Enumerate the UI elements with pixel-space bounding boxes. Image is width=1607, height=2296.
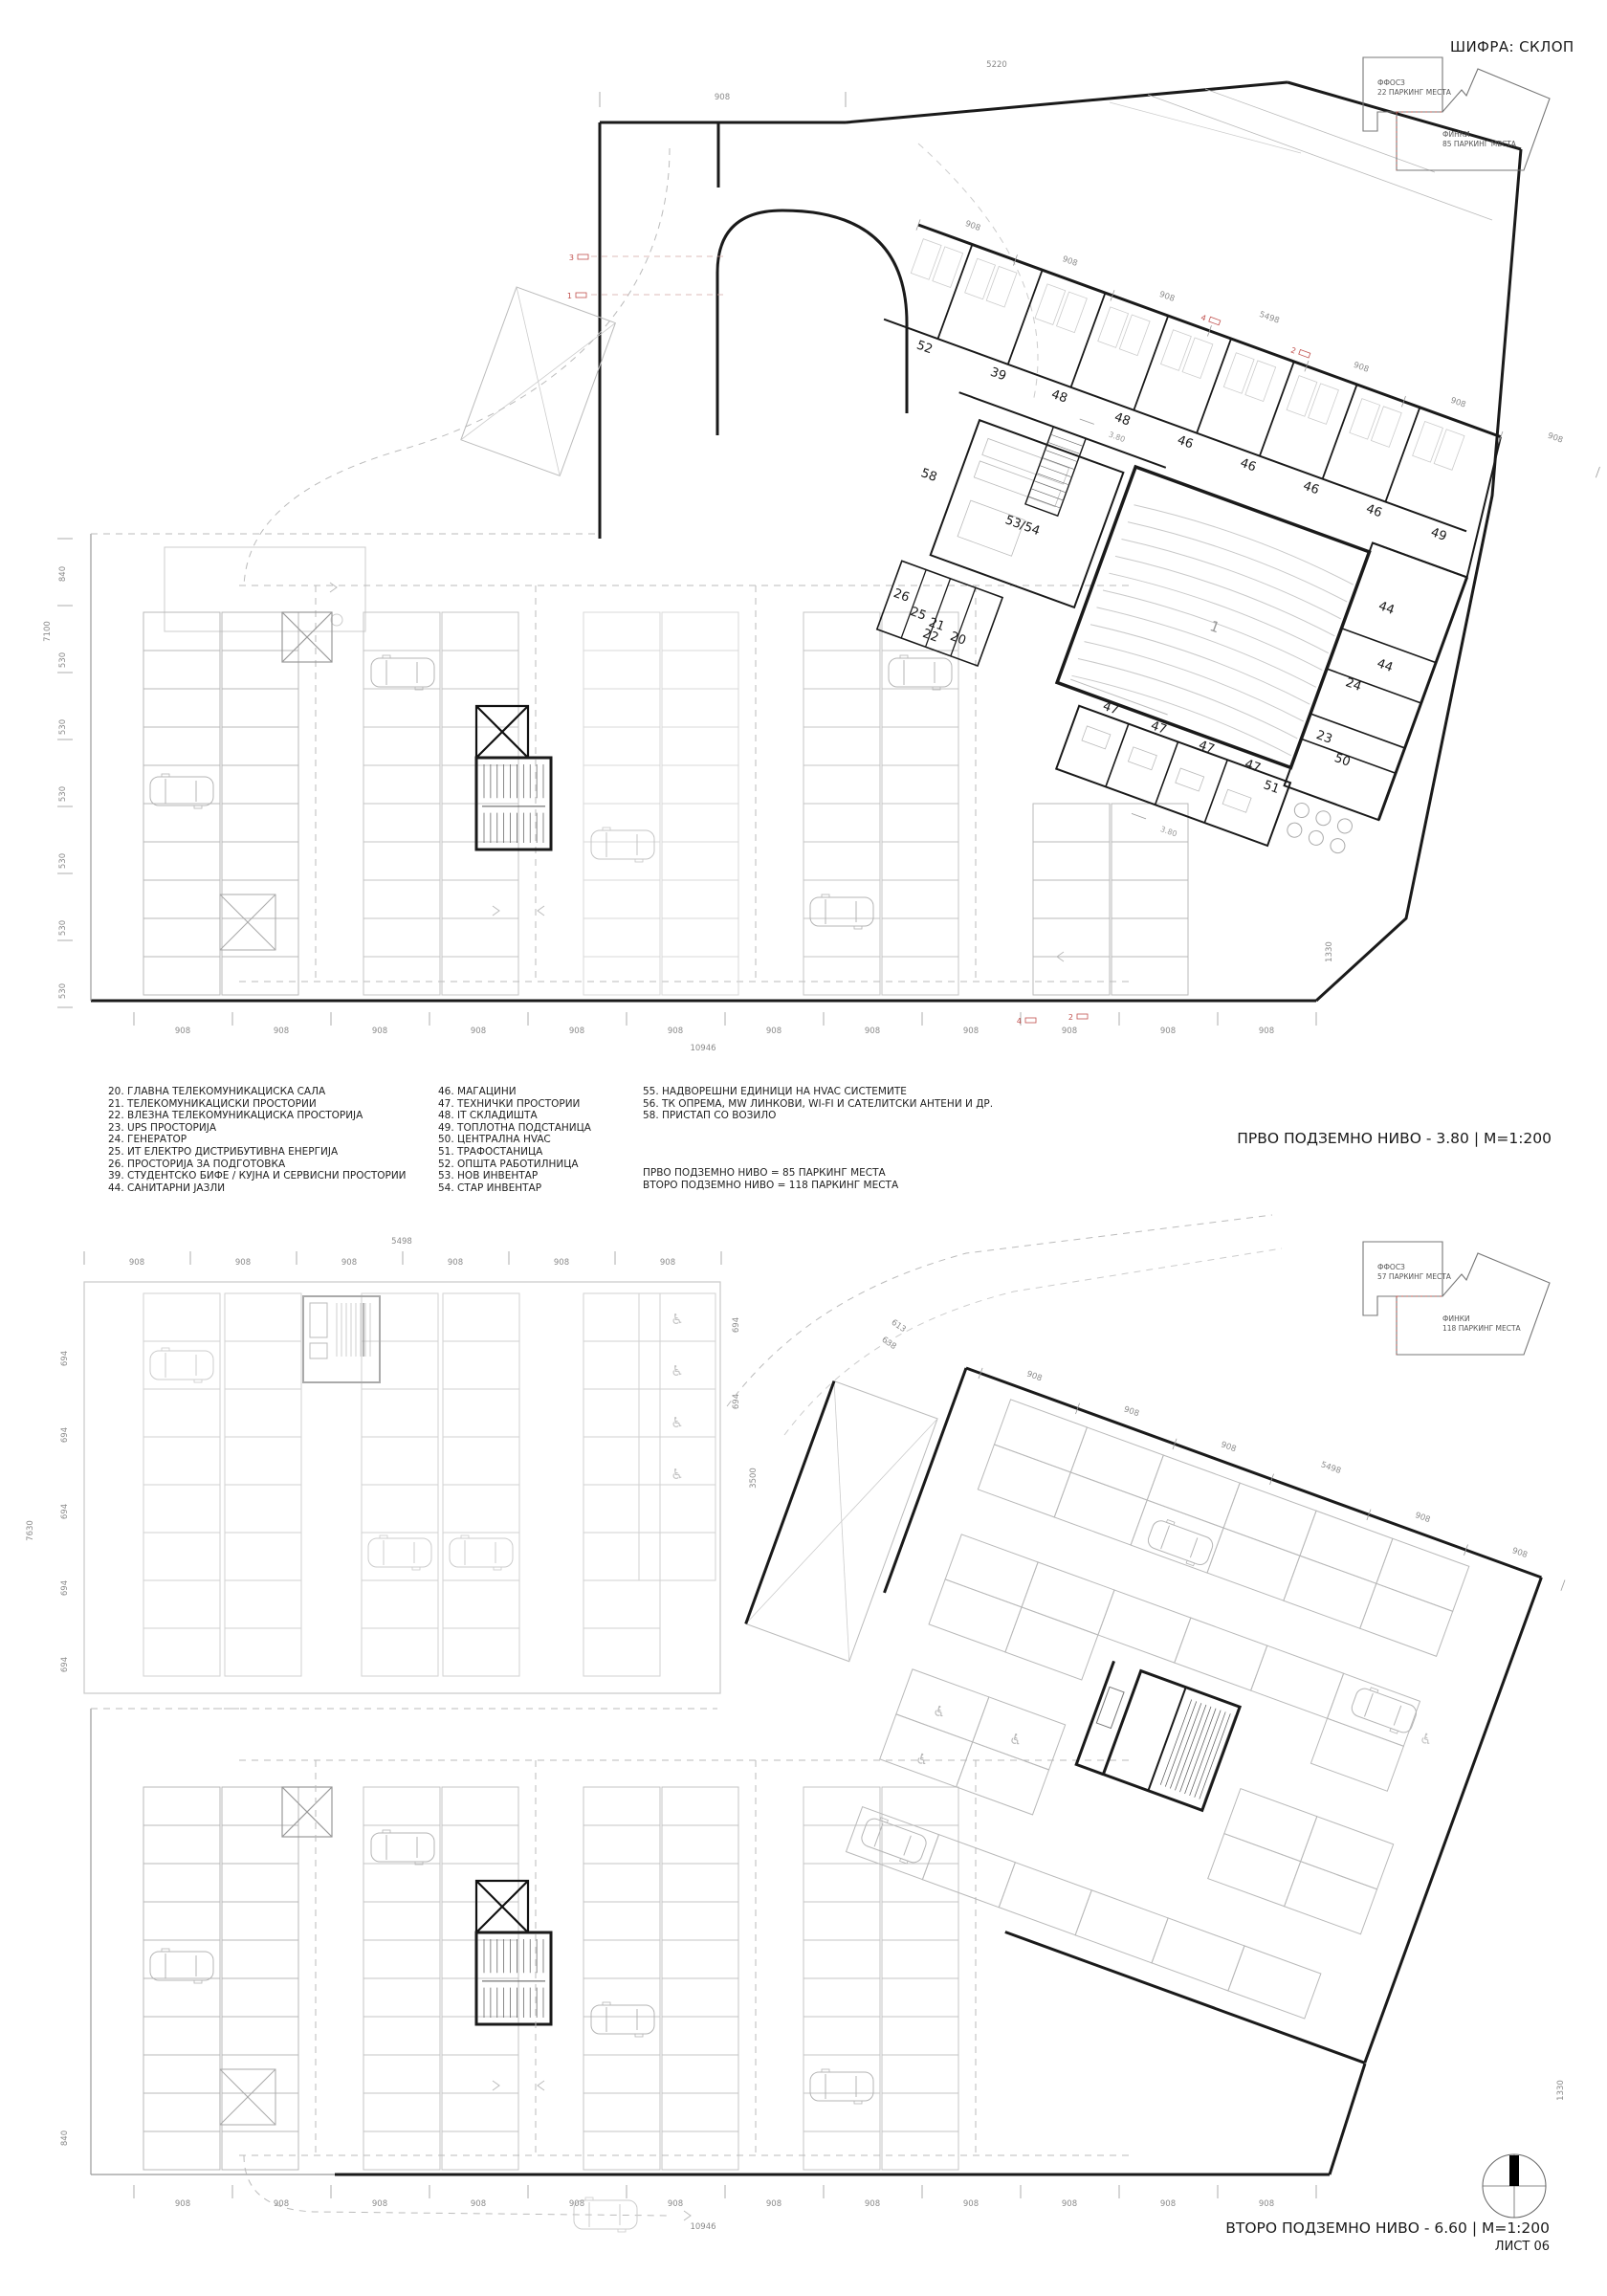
note-line: ВТОРО ПОДЗЕМНО НИВО = 118 ПАРКИНГ МЕСТА bbox=[643, 1180, 898, 1192]
legend-item: 21. ТЕЛЕКОМУНИКАЦИСКИ ПРОСТОРИИ bbox=[108, 1098, 407, 1111]
legend-item: 39. СТУДЕНТСКО БИФЕ / КУЈНА И СЕРВИСНИ П… bbox=[108, 1170, 407, 1182]
dim-label: 5498 bbox=[1319, 1460, 1342, 1476]
dim-label: 908 bbox=[448, 1258, 463, 1268]
keyplan-zone-b: ФИНКИ 118 ПАРКИНГ МЕСТА bbox=[1442, 1314, 1521, 1333]
dim-label: 908 bbox=[471, 1027, 486, 1036]
dim-label: 530 bbox=[58, 786, 68, 802]
car-symbol bbox=[858, 1814, 929, 1867]
dim-label: 908 bbox=[660, 1258, 675, 1268]
dim-label: 908 bbox=[865, 1027, 880, 1036]
dim-label: 908 bbox=[1259, 2199, 1274, 2209]
dim-label: 908 bbox=[569, 1027, 584, 1036]
room-number: 20 bbox=[948, 629, 968, 649]
car-symbol bbox=[368, 1535, 431, 1570]
legend-item: 54. СТАР ИНВЕНТАР bbox=[438, 1182, 591, 1195]
room-number: 44 bbox=[1375, 656, 1395, 675]
dim-label: 908 bbox=[1259, 1027, 1274, 1036]
room-number: 52 bbox=[914, 339, 935, 358]
red-annotation: 1 bbox=[567, 292, 572, 300]
legend-item: 44. САНИТАРНИ ЈАЗЛИ bbox=[108, 1182, 407, 1195]
legend-item: 47. ТЕХНИЧКИ ПРОСТОРИИ bbox=[438, 1098, 591, 1111]
dim-label: 908 bbox=[1414, 1511, 1432, 1525]
dim-label: 908 bbox=[1449, 396, 1467, 410]
legend-column-3: 55. НАДВОРЕШНИ ЕДИНИЦИ НА HVAC СИСТЕМИТЕ… bbox=[643, 1086, 993, 1122]
legend-item: 51. ТРАФОСТАНИЦА bbox=[438, 1146, 591, 1159]
car-symbol bbox=[150, 1348, 213, 1382]
room-number: 1 bbox=[1207, 617, 1222, 636]
disabled-parking-icon: ♿ bbox=[671, 1362, 683, 1380]
dim-label: 908 bbox=[963, 1027, 979, 1036]
legend-column-2: 46. МАГАЦИНИ 47. ТЕХНИЧКИ ПРОСТОРИИ 48. … bbox=[438, 1086, 591, 1194]
dim-label: 530 bbox=[58, 983, 68, 999]
dim-label: 694 bbox=[60, 1657, 70, 1672]
disabled-parking-icon: ♿ bbox=[914, 1749, 932, 1770]
level-mark: 3.80 bbox=[1159, 825, 1178, 839]
dim-label: 908 bbox=[1158, 290, 1177, 304]
parking-stalls bbox=[143, 612, 1188, 995]
dim-label: 908 bbox=[668, 2199, 683, 2209]
dim-label: 908 bbox=[1061, 254, 1079, 269]
legend-item: 23. UPS ПРОСТОРИЈА bbox=[108, 1122, 407, 1135]
red-annotation: 4 bbox=[1017, 1017, 1022, 1026]
keyplan-shape bbox=[1358, 52, 1554, 176]
dim-label: 908 bbox=[1160, 2199, 1176, 2209]
plan2-title: ВТОРО ПОДЗЕМНО НИВО - 6.60 | М=1:200 bbox=[1043, 2219, 1550, 2237]
upper-parking-grid: ♿♿♿♿ bbox=[84, 1282, 720, 1693]
floor-plan-level-1: 9089089085498908908908423.803.8052394848… bbox=[0, 0, 1607, 1196]
room-number: 47 bbox=[1243, 757, 1263, 776]
dim-label: 7100 bbox=[43, 621, 53, 642]
room-number: 46 bbox=[1176, 433, 1196, 453]
car-symbol bbox=[1349, 1684, 1420, 1737]
room-number: 39 bbox=[988, 365, 1008, 385]
disabled-parking-icon: ♿ bbox=[671, 1414, 683, 1431]
dim-label: 908 bbox=[766, 2199, 781, 2209]
legend-item: 22. ВЛЕЗНА ТЕЛЕКОМУНИКАЦИСКА ПРОСТОРИЈА bbox=[108, 1110, 407, 1122]
dim-label: 908 bbox=[1510, 1546, 1529, 1560]
dim-label: 530 bbox=[58, 719, 68, 735]
room-number: 53/54 bbox=[1003, 513, 1042, 539]
dim-label: 10946 bbox=[690, 2222, 715, 2232]
keyplan-level-1: ФФОСЗ 22 ПАРКИНГ МЕСТА ФИНКИ 85 ПАРКИНГ … bbox=[1358, 52, 1554, 176]
dim-label: 694 bbox=[60, 1580, 70, 1596]
dim-label: 908 bbox=[865, 2199, 880, 2209]
dim-label: 908 bbox=[274, 1027, 289, 1036]
dim-label: 1330 bbox=[1325, 941, 1334, 962]
dim-label: 530 bbox=[58, 920, 68, 936]
plan1-title: ПРВО ПОДЗЕМНО НИВО - 3.80 | М=1:200 bbox=[1045, 1130, 1552, 1147]
dim-label: 908 bbox=[569, 2199, 584, 2209]
dim-label: 694 bbox=[60, 1427, 70, 1443]
legend-item: 56. ТК ОПРЕМА, MW ЛИНКОВИ, WI-FI И САТЕЛ… bbox=[643, 1098, 993, 1111]
room-number: 25 bbox=[908, 605, 928, 624]
car-symbol bbox=[889, 655, 952, 690]
car-symbol bbox=[371, 655, 434, 690]
drive-lanes bbox=[239, 1760, 1129, 2232]
legend-item: 20. ГЛАВНА ТЕЛЕКОМУНИКАЦИСКА САЛА bbox=[108, 1086, 407, 1098]
legend-item: 48. IT СКЛАДИШТА bbox=[438, 1110, 591, 1122]
dim-label: 908 bbox=[715, 93, 730, 102]
legend-item: 50. ЦЕНТРАЛНА HVAC bbox=[438, 1134, 591, 1146]
keyplan-level-2: ФФОСЗ 57 ПАРКИНГ МЕСТА ФИНКИ 118 ПАРКИНГ… bbox=[1358, 1236, 1554, 1360]
car-symbol bbox=[450, 1535, 513, 1570]
legend-item: 58. ПРИСТАП СО ВОЗИЛО bbox=[643, 1110, 993, 1122]
room-number: 44 bbox=[1376, 599, 1397, 618]
dim-label: 694 bbox=[60, 1351, 70, 1366]
room-number: 24 bbox=[1344, 675, 1364, 695]
dim-label: 908 bbox=[372, 1027, 387, 1036]
legend-column-1: 20. ГЛАВНА ТЕЛЕКОМУНИКАЦИСКА САЛА 21. ТЕ… bbox=[108, 1086, 407, 1194]
dim-label: 694 bbox=[732, 1317, 741, 1333]
dim-label: 638 bbox=[880, 1336, 898, 1353]
site-roads bbox=[727, 1215, 1365, 2175]
disabled-parking-icon: ♿ bbox=[1007, 1730, 1025, 1751]
upper-grid-dims: 5498908908908908908908763069469469469469… bbox=[26, 1237, 1566, 2146]
room-number: 46 bbox=[1301, 479, 1321, 498]
dim-label: 908 bbox=[341, 1258, 357, 1268]
dim-label: 908 bbox=[1220, 1440, 1238, 1454]
dimensions: 9085220908908908908908908908908908908908… bbox=[43, 60, 1334, 1053]
room-number: 50 bbox=[1332, 751, 1353, 770]
red-annotation: 4 bbox=[1200, 313, 1207, 322]
dim-label: 908 bbox=[964, 219, 982, 233]
room-number: 26 bbox=[892, 586, 912, 606]
dim-label: 530 bbox=[58, 853, 68, 869]
floor-plan-level-2: ♿♿♿♿549890890890890890890876306946946946… bbox=[0, 1196, 1607, 2296]
legend-item: 26. ПРОСТОРИЈА ЗА ПОДГОТОВКА bbox=[108, 1159, 407, 1171]
dim-label: 908 bbox=[766, 1027, 781, 1036]
room-number: 48 bbox=[1049, 387, 1069, 407]
dim-label: 908 bbox=[1353, 361, 1371, 375]
legend-item: 53. НОВ ИНВЕНТАР bbox=[438, 1170, 591, 1182]
dim-label: 613 bbox=[890, 1318, 908, 1336]
dim-label: 908 bbox=[554, 1258, 569, 1268]
keyplan-zone-b: ФИНКИ 85 ПАРКИНГ МЕСТА bbox=[1442, 130, 1516, 148]
sheet-number: ЛИСТ 06 bbox=[1043, 2240, 1550, 2254]
legend-item: 49. ТОПЛОТНА ПОДСТАНИЦА bbox=[438, 1122, 591, 1135]
dim-label: 908 bbox=[372, 2199, 387, 2209]
legend-item: 25. ИТ ЕЛЕКТРО ДИСТРИБУТИВНА ЕНЕРГИЈА bbox=[108, 1146, 407, 1159]
car-symbol bbox=[810, 2069, 873, 2104]
dim-label: 908 bbox=[235, 1258, 251, 1268]
parking-count-notes: ПРВО ПОДЗЕМНО НИВО = 85 ПАРКИНГ МЕСТА ВТ… bbox=[643, 1167, 898, 1192]
stair-block-gray bbox=[303, 1296, 380, 1382]
dim-label: 908 bbox=[1546, 431, 1564, 446]
dim-label: 840 bbox=[60, 2130, 70, 2146]
dim-label: 694 bbox=[732, 1394, 741, 1409]
keyplan-zone-a: ФФОСЗ 22 ПАРКИНГ МЕСТА bbox=[1377, 78, 1451, 97]
dim-label: 908 bbox=[668, 1027, 683, 1036]
legend-item: 55. НАДВОРЕШНИ ЕДИНИЦИ НА HVAC СИСТЕМИТЕ bbox=[643, 1086, 993, 1098]
disabled-parking-icon: ♿ bbox=[671, 1466, 683, 1483]
dim-label: 908 bbox=[1122, 1404, 1140, 1419]
ramp-block bbox=[461, 287, 616, 475]
site-boundary bbox=[91, 82, 1521, 1001]
dim-label: 908 bbox=[1062, 1027, 1077, 1036]
car-symbol bbox=[591, 828, 654, 862]
dim-label: 530 bbox=[58, 652, 68, 668]
note-line: ПРВО ПОДЗЕМНО НИВО = 85 ПАРКИНГ МЕСТА bbox=[643, 1167, 898, 1180]
dim-label: 908 bbox=[175, 1027, 190, 1036]
red-annotation: 2 bbox=[1068, 1013, 1073, 1022]
rotated-parking-wing: ♿♿♿♿9089089085498908908908908 bbox=[677, 1293, 1607, 2126]
drive-lanes bbox=[239, 143, 1129, 982]
room-number: 46 bbox=[1238, 456, 1258, 475]
room-number: 58 bbox=[919, 466, 939, 485]
dim-label: 1330 bbox=[1556, 2080, 1566, 2101]
dim-label: 3500 bbox=[749, 1468, 759, 1489]
dim-label: 908 bbox=[1160, 1027, 1176, 1036]
dim-label: 908 bbox=[1025, 1369, 1044, 1383]
dim-label: 908 bbox=[129, 1258, 144, 1268]
dim-label: 840 bbox=[58, 566, 68, 582]
room-number: 49 bbox=[1429, 525, 1449, 544]
dim-label: 908 bbox=[274, 2199, 289, 2209]
legend-item: 46. МАГАЦИНИ bbox=[438, 1086, 591, 1098]
room-number: 46 bbox=[1364, 502, 1384, 521]
keyplan-zone-a: ФФОСЗ 57 ПАРКИНГ МЕСТА bbox=[1377, 1263, 1451, 1281]
dim-label: 5220 bbox=[986, 60, 1007, 70]
room-number: 51 bbox=[1262, 778, 1282, 797]
dim-label: 10946 bbox=[690, 1044, 715, 1053]
red-annotation: 2 bbox=[1289, 345, 1297, 355]
legend-item: 52. ОПШТА РАБОТИЛНИЦА bbox=[438, 1159, 591, 1171]
disabled-parking-icon: ♿ bbox=[1418, 1729, 1436, 1750]
dim-label: 5498 bbox=[391, 1237, 412, 1247]
dim-label: 7630 bbox=[26, 1520, 35, 1541]
keyplan-shape bbox=[1358, 1236, 1554, 1360]
dim-label: 908 bbox=[1062, 2199, 1077, 2209]
car-symbol bbox=[810, 894, 873, 929]
car-symbol bbox=[371, 1830, 434, 1865]
red-annotation: 3 bbox=[569, 254, 574, 262]
dim-label: 908 bbox=[471, 2199, 486, 2209]
dim-label: 908 bbox=[175, 2199, 190, 2209]
dim-label: 5498 bbox=[1258, 310, 1281, 326]
room-number: 48 bbox=[1112, 410, 1133, 430]
dim-label: 908 bbox=[963, 2199, 979, 2209]
disabled-parking-icon: ♿ bbox=[671, 1311, 683, 1328]
car-symbol bbox=[1145, 1515, 1216, 1569]
north-arrow bbox=[1483, 2154, 1546, 2218]
disabled-parking-icon: ♿ bbox=[931, 1701, 949, 1722]
level-mark: 3.80 bbox=[1108, 430, 1127, 445]
legend-item: 24. ГЕНЕРАТОР bbox=[108, 1134, 407, 1146]
dim-label: 694 bbox=[60, 1504, 70, 1519]
parking-stalls bbox=[91, 1709, 1330, 2175]
drawing-sheet: 9089089085498908908908423.803.8052394848… bbox=[0, 0, 1607, 2296]
car-symbol bbox=[591, 2002, 654, 2037]
